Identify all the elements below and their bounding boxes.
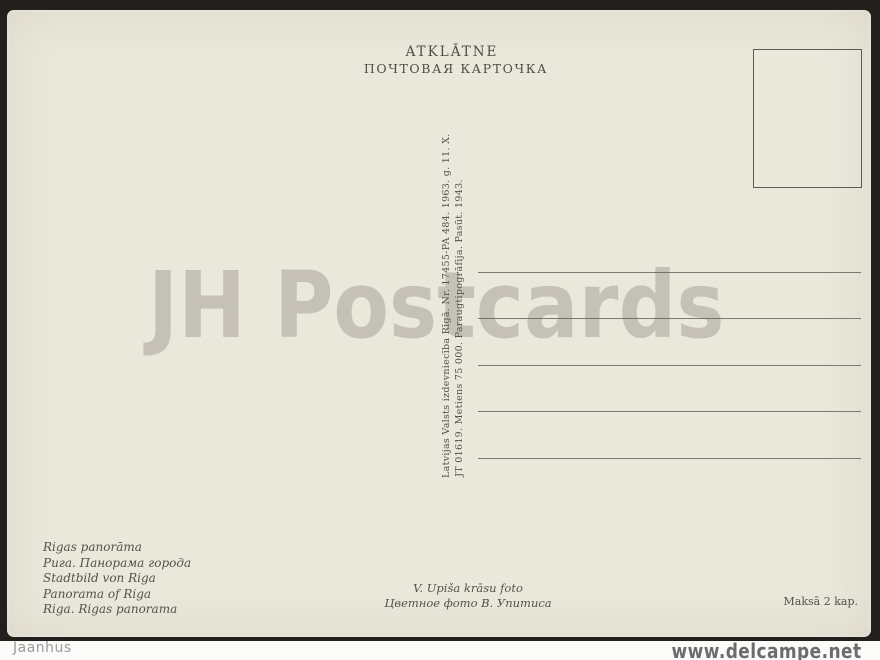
address-line [478, 411, 861, 412]
postcard-back: ATKLĀTNE ПОЧТОВАЯ КАРТОЧКА Latvijas Vals… [7, 10, 871, 637]
stamp-box [753, 49, 862, 188]
caption-latvian2: Riga. Rigas panorama [43, 602, 191, 618]
postcard-title-latvian: ATKLĀTNE [406, 44, 499, 60]
address-line [478, 365, 861, 366]
photo-credit-russian: Цветное фото В. Упитиса [384, 596, 551, 611]
publisher-imprint: Latvijas Valsts izdevniecība Rīgā. Nr. 1… [440, 178, 466, 478]
seller-watermark: JH Postcards [148, 260, 725, 352]
address-line [478, 318, 861, 319]
publisher-imprint-line1: Latvijas Valsts izdevniecība Rīgā. Nr. 1… [440, 178, 453, 478]
address-line [478, 272, 861, 273]
postcard-scan: ATKLĀTNE ПОЧТОВАЯ КАРТОЧКА Latvijas Vals… [0, 0, 880, 660]
caption-english: Panorama of Riga [43, 587, 191, 603]
publisher-imprint-line2: JT 01619. Metiens 75 000. Paraugtipogrāf… [453, 178, 466, 478]
caption-block: Rigas panorāma Рига. Панорама города Sta… [43, 540, 191, 618]
caption-german: Stadtbild von Riga [43, 571, 191, 587]
caption-russian: Рига. Панорама города [43, 556, 191, 572]
price-label: Maksā 2 kap. [784, 595, 858, 608]
address-line [478, 458, 861, 459]
delcampe-url: www.delcampe.net [672, 639, 862, 660]
photo-credit-latvian: V. Upiša krāsu foto [384, 581, 551, 596]
postcard-title-russian: ПОЧТОВАЯ КАРТОЧКА [364, 61, 548, 76]
photo-credit: V. Upiša krāsu foto Цветное фото В. Упит… [384, 581, 551, 611]
scanner-watermark-jaanhus: Jaanhus [13, 640, 72, 656]
caption-latvian: Rigas panorāma [43, 540, 191, 556]
